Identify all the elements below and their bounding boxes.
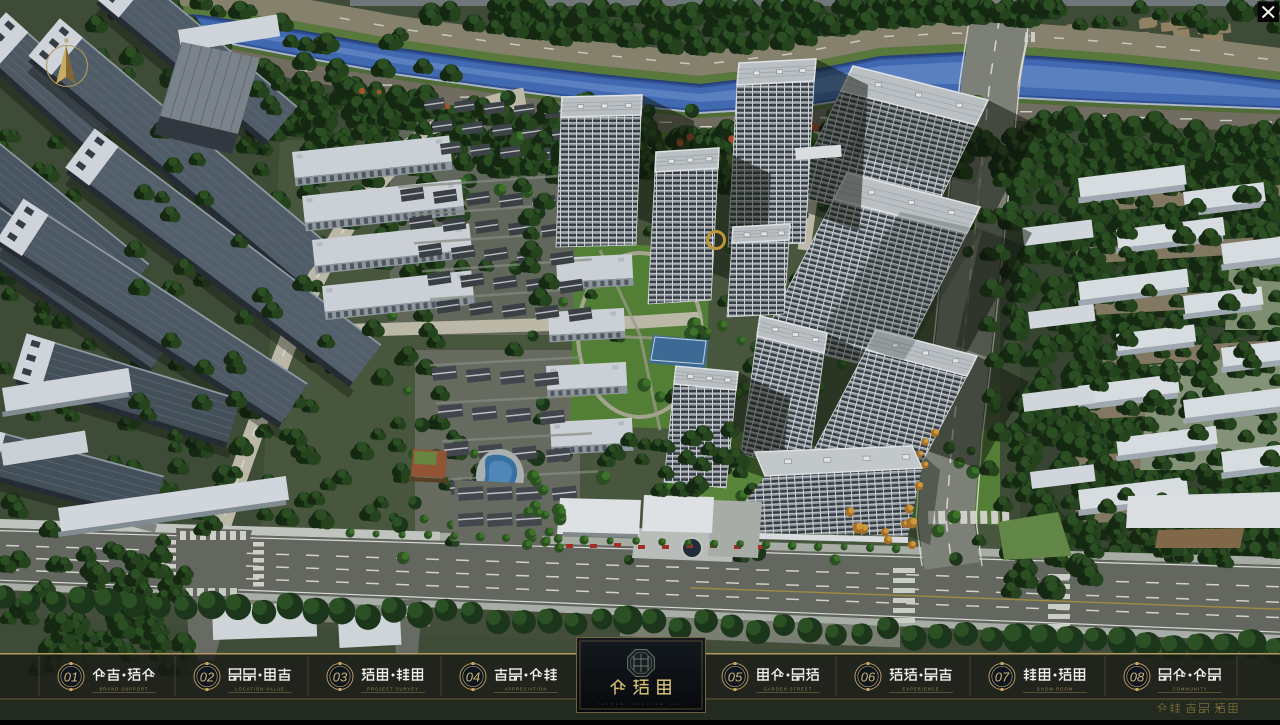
svg-text:EXPERIENCE: EXPERIENCE (903, 687, 940, 692)
svg-text:F L O W E R · L A N G U A G E: F L O W E R · L A N G U A G E · H A L L (598, 702, 685, 706)
svg-text:02: 02 (200, 670, 215, 685)
svg-text:BRAND SUPPORT: BRAND SUPPORT (100, 687, 149, 692)
svg-text:LOCATION VALUE: LOCATION VALUE (235, 687, 285, 692)
svg-text:04: 04 (466, 670, 480, 685)
svg-text:PROJECT SURVEY: PROJECT SURVEY (367, 687, 419, 692)
svg-text:01: 01 (64, 670, 78, 685)
svg-text:03: 03 (333, 670, 348, 685)
svg-text:08: 08 (1130, 670, 1145, 685)
svg-text:06: 06 (861, 670, 876, 685)
svg-text:SHOW ROOM: SHOW ROOM (1037, 687, 1073, 692)
svg-text:07: 07 (995, 670, 1010, 685)
svg-text:05: 05 (728, 670, 743, 685)
svg-text:COMMUNITY: COMMUNITY (1173, 687, 1208, 692)
svg-text:GARDEN STREET: GARDEN STREET (764, 687, 813, 692)
svg-text:APPRECIATION: APPRECIATION (505, 687, 548, 692)
